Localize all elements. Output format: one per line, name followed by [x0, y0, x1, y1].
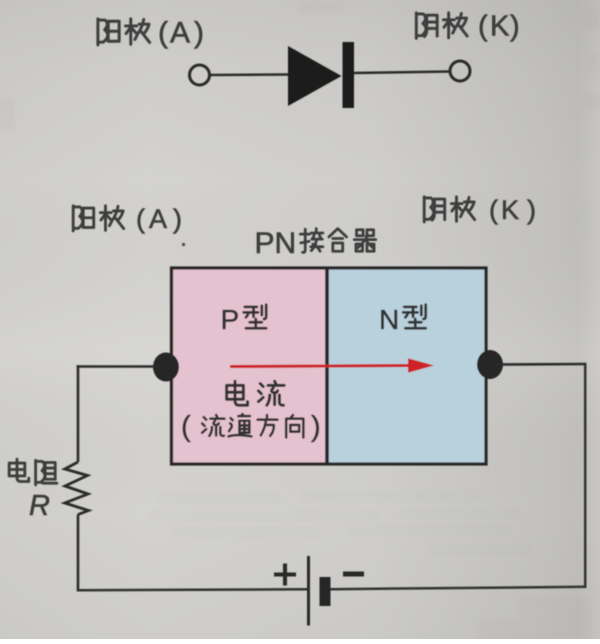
- svg-text:K: K: [490, 11, 510, 43]
- svg-text:PN: PN: [255, 227, 297, 260]
- svg-text:): ): [311, 411, 321, 443]
- svg-text:A: A: [170, 17, 190, 50]
- svg-text:K: K: [501, 195, 519, 225]
- svg-text:(: (: [181, 411, 191, 443]
- svg-text:P: P: [221, 304, 240, 335]
- svg-text:R: R: [29, 490, 50, 522]
- svg-text:(: (: [136, 204, 145, 234]
- svg-text:): ): [527, 195, 536, 225]
- svg-text:N: N: [379, 304, 399, 335]
- svg-text:A: A: [149, 204, 167, 234]
- svg-text:): ): [510, 11, 520, 43]
- svg-text:): ): [173, 204, 182, 234]
- svg-text:(: (: [478, 11, 488, 43]
- svg-text:(: (: [489, 195, 498, 225]
- svg-text:): ): [194, 17, 204, 50]
- svg-text:(: (: [158, 17, 168, 50]
